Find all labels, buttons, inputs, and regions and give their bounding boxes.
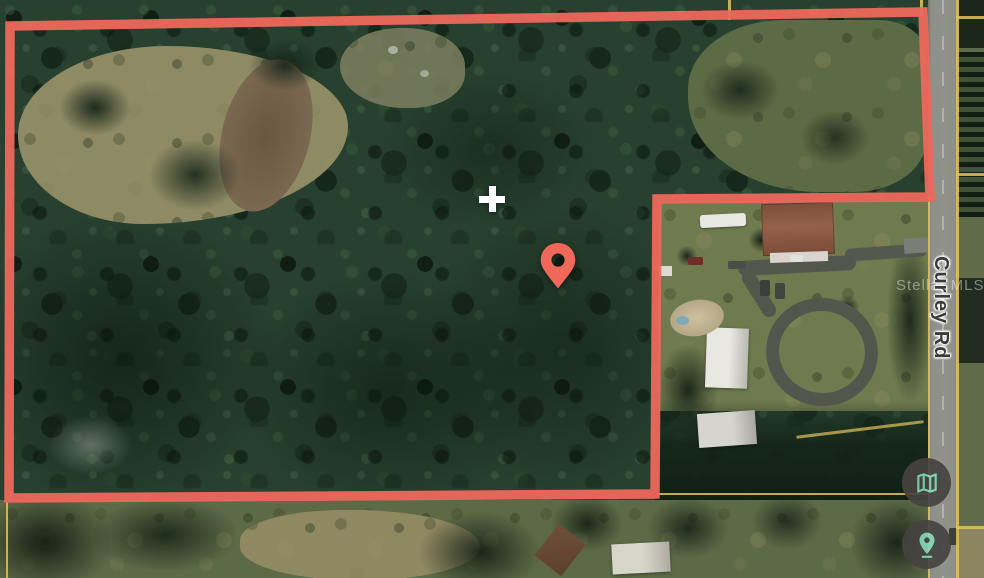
map-view-button[interactable] xyxy=(902,458,951,507)
property-boundary-outline xyxy=(0,0,984,578)
map-viewport[interactable]: Stellar MLS Curley Rd xyxy=(0,0,984,578)
boundary-polygon xyxy=(9,12,930,498)
location-pin-icon xyxy=(914,531,940,559)
trifold-map-icon xyxy=(914,470,940,496)
map-center-cross-icon xyxy=(479,186,505,212)
road-label-curley-rd: Curley Rd xyxy=(929,256,952,366)
location-marker-pin[interactable] xyxy=(536,242,580,290)
map-controls xyxy=(902,458,951,569)
street-view-button[interactable] xyxy=(902,520,951,569)
